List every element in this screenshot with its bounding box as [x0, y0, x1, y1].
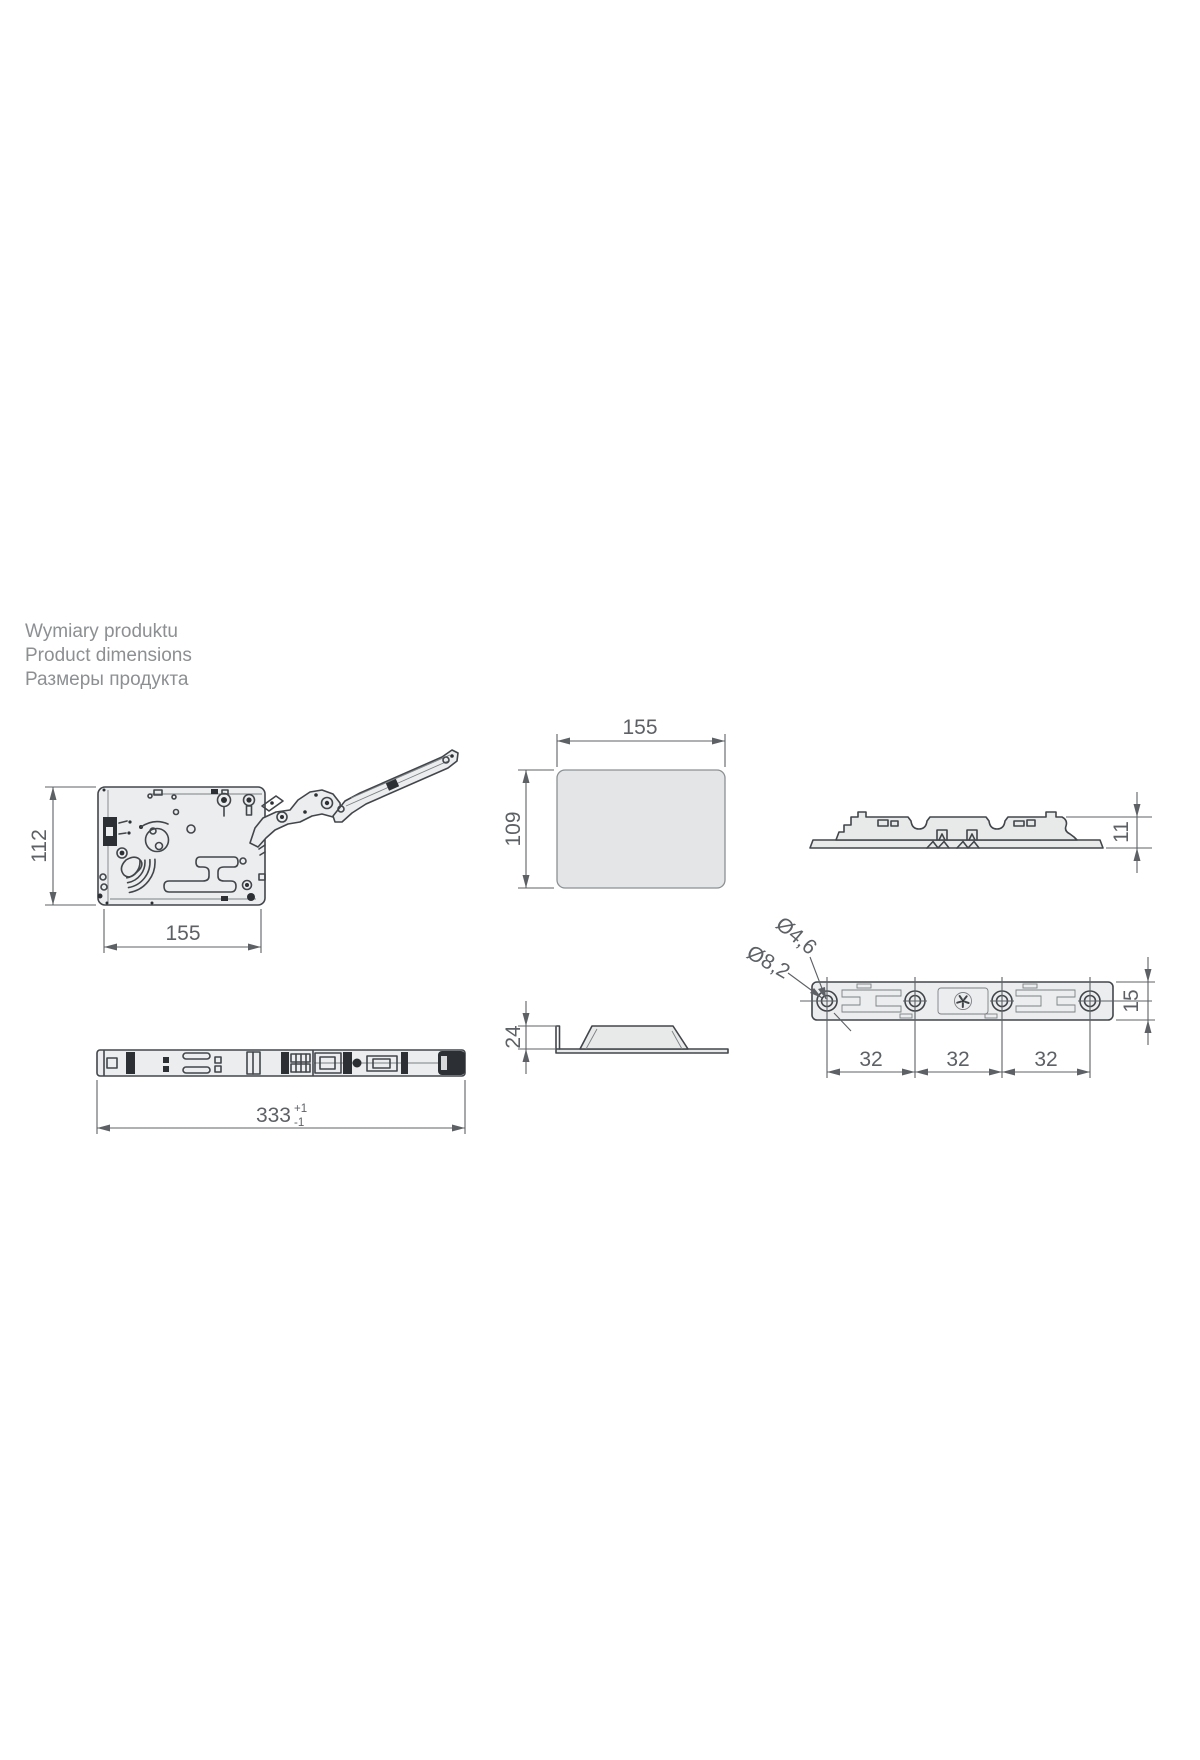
dim-front-height-label: 112 — [28, 829, 51, 862]
dim-plate-side-height-label: 11 — [1110, 821, 1133, 843]
dim-plate-top-height-label: 15 — [1120, 989, 1143, 1012]
dim-hole-pitch: 32 32 32 — [827, 1048, 1090, 1076]
cover-cap-side-view: 24 — [502, 1001, 728, 1074]
dim-cover-width: 155 — [557, 716, 725, 767]
dim-front-width: 155 — [104, 909, 261, 953]
front-view-mechanism: 112 155 — [28, 750, 458, 953]
dim-cap-height: 24 — [502, 1001, 557, 1074]
dim-pitch2-label: 32 — [946, 1048, 969, 1071]
dim-pitch3-label: 32 — [1034, 1048, 1057, 1071]
product-dimensions-page: Wymiary produktu Product dimensions Разм… — [0, 0, 1200, 1760]
mounting-plate-side-view: 11 — [810, 792, 1152, 873]
dim-cap-height-label: 24 — [502, 1025, 525, 1049]
dim-pitch1-label: 32 — [859, 1048, 882, 1071]
lift-arm — [250, 750, 458, 847]
hole-diameter-callouts: Ø4,6 Ø8,2 — [743, 913, 851, 1031]
technical-drawing-canvas: 112 155 155 — [0, 0, 1200, 1760]
dim-plate-side-height: 11 — [1066, 792, 1152, 873]
dim-front-width-label: 155 — [165, 922, 200, 945]
callout-hole-small-label: Ø4,6 — [771, 913, 821, 960]
dim-cover-width-label: 155 — [622, 716, 657, 739]
dim-rail-tol-plus: +1 — [294, 1103, 307, 1115]
dim-cover-depth-label: 109 — [502, 811, 525, 846]
dim-rail-length: 333 +1 -1 — [97, 1080, 465, 1134]
dim-rail-tol-minus: -1 — [294, 1117, 304, 1129]
mounting-plate-top-view: Ø4,6 Ø8,2 32 32 32 — [743, 913, 1155, 1078]
mechanism-side-view: 333 +1 -1 — [97, 1050, 465, 1134]
dim-front-height: 112 — [28, 787, 96, 905]
dim-rail-length-label: 333 — [256, 1104, 291, 1127]
cover-plate-top-view: 155 109 — [502, 716, 725, 888]
callout-hole-large-label: Ø8,2 — [743, 941, 794, 984]
dim-cover-depth: 109 — [502, 770, 554, 888]
